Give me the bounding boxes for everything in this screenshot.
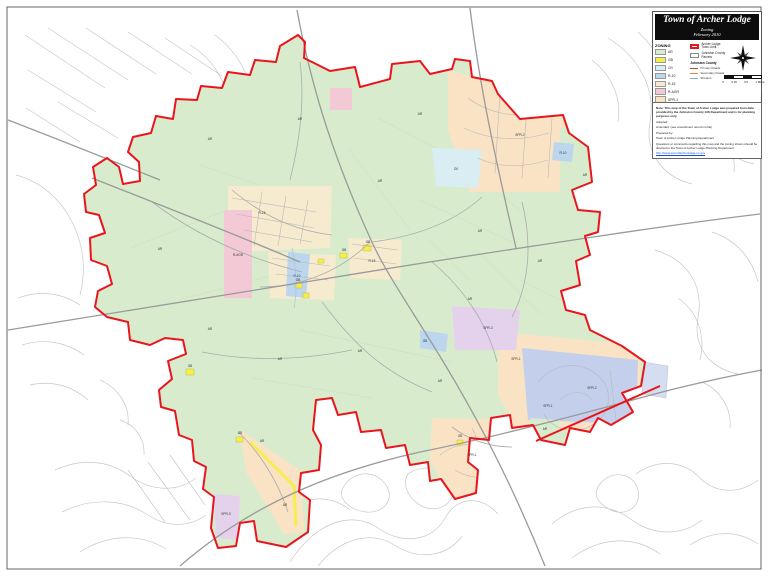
zone-label: GB — [238, 431, 243, 435]
zone-label: GB — [188, 364, 193, 368]
zone-label: SPR-2 — [587, 386, 597, 390]
zone-label: O/I — [454, 167, 458, 171]
zoning-legend-item: R-10 — [655, 73, 690, 80]
boundary-legend-rows: Archer Lodge Town LimitJohnston County P… — [690, 43, 727, 59]
county-legend-item: Primary Roads — [690, 66, 727, 70]
zone-color-swatch — [655, 88, 666, 95]
zone-label: R-15 — [369, 259, 376, 263]
map-sheet: ARARARARARARARARARARARARARARARARR-AGRR-1… — [0, 0, 768, 576]
scale-label: 1 Miles — [756, 80, 765, 84]
boundary-swatch — [690, 44, 699, 49]
line-swatch — [690, 78, 698, 79]
zone-color-swatch — [655, 49, 666, 56]
zone-code-label: GB — [668, 58, 673, 62]
boundary-label: Archer Lodge Town Limit — [701, 43, 727, 50]
zone-code-label: AR — [668, 50, 673, 54]
county-legend-rows: Primary RoadsSecondary RoadsStreams — [690, 66, 727, 80]
scale-bar — [724, 75, 762, 80]
zone-color-swatch — [655, 73, 666, 80]
zone-code-label: R-10 — [668, 74, 675, 78]
county-legend-heading: Johnston County — [690, 61, 727, 65]
zoning-legend-item: O/I — [655, 65, 690, 72]
zoning-legend-item: GB — [655, 57, 690, 64]
notes-block: Note: This map of the Town of Archer Lod… — [652, 102, 762, 159]
county-item-label: Streams — [700, 76, 711, 80]
zone-label: SPR-1 — [467, 453, 477, 457]
county-item-label: Primary Roads — [700, 66, 720, 70]
zone-label: SPR-3 — [483, 326, 493, 330]
zoning-legend-heading: ZONING — [655, 43, 690, 48]
zone-label: AR — [260, 439, 265, 443]
zone-label: AR — [478, 229, 483, 233]
scale-labels: 0 0.25 0.5 1 Miles — [722, 80, 764, 84]
gb-parcel — [303, 293, 309, 298]
note-line: Questions or comments regarding this map… — [656, 142, 758, 150]
zone-color-swatch — [655, 81, 666, 88]
line-swatch — [690, 73, 698, 74]
zone-label: AR — [583, 173, 588, 177]
note-line: Prepared by: — [656, 131, 758, 135]
gb-parcel — [340, 253, 347, 258]
notes-lines: Note: This map of the Town of Archer Lod… — [656, 106, 758, 150]
zone-label: AR — [208, 327, 213, 331]
boundary-label: Johnston County Parcels — [701, 52, 727, 59]
boundary-legend-item: Archer Lodge Town Limit — [690, 43, 727, 50]
zone-code-label: R-15 — [668, 82, 675, 86]
zone-patch — [522, 348, 638, 424]
zone-label: R-15 — [259, 211, 266, 215]
zone-label: GB — [458, 434, 463, 438]
zone-label: GB — [296, 278, 301, 282]
zone-label: SPR-1 — [511, 357, 521, 361]
scale-label: 0 — [722, 80, 724, 84]
zone-label: GB — [342, 248, 347, 252]
zone-label: SPR-2 — [515, 133, 525, 137]
zone-label: AR — [278, 357, 283, 361]
zone-label: GB — [366, 240, 371, 244]
boundary-swatch — [690, 53, 699, 58]
boundary-legend-item: Johnston County Parcels — [690, 52, 727, 59]
zone-label: AR — [358, 349, 363, 353]
zone-label: AR — [418, 112, 423, 116]
zone-label: AR — [298, 117, 303, 121]
map-date: February 2010 — [655, 32, 759, 37]
map-title: Town of Archer Lodge — [655, 16, 759, 26]
gb-parcel — [318, 259, 324, 263]
zone-code-label: O/I — [668, 66, 673, 70]
zone-label: AR — [538, 259, 543, 263]
zone-label: R-AGR — [233, 253, 244, 257]
zone-label: SPR-1 — [543, 404, 553, 408]
zone-label: AR — [158, 247, 163, 251]
zoning-legend-item: AR — [655, 49, 690, 56]
scale-label: 0.5 — [744, 80, 748, 84]
zone-label: AR — [208, 137, 213, 141]
zone-label: AR — [378, 179, 383, 183]
zone-label: R-10 — [560, 151, 567, 155]
zone-label: AR — [438, 379, 443, 383]
info-link[interactable]: http://www.townofarcherlodge-nc.gov — [656, 151, 758, 155]
note-line: Town of Archer Lodge Planning Department — [656, 136, 758, 140]
zoning-legend-item: R-AGR — [655, 88, 690, 95]
zone-label: GB — [423, 339, 428, 343]
note-line: Note: This map of the Town of Archer Lod… — [656, 106, 758, 118]
gb-parcel — [236, 437, 243, 442]
note-line: Adopted: — [656, 120, 758, 124]
county-item-label: Secondary Roads — [700, 71, 724, 75]
title-banner: Town of Archer Lodge Zoning February 201… — [655, 14, 759, 40]
zone-patch — [330, 88, 352, 110]
note-line: Amended: (see amendment record on file) — [656, 125, 758, 129]
zone-color-swatch — [655, 57, 666, 64]
zone-patch — [214, 494, 240, 540]
gb-parcel — [186, 369, 194, 375]
compass-rose-icon — [730, 45, 756, 71]
zone-label: AR — [543, 427, 548, 431]
county-legend-item: Secondary Roads — [690, 71, 727, 75]
zone-code-label: SPR-1 — [668, 98, 678, 102]
scale-label: 0.25 — [731, 80, 736, 84]
zone-label: SPR-3 — [221, 512, 231, 516]
zone-color-swatch — [655, 65, 666, 72]
zone-label: AR — [283, 503, 288, 507]
zone-label: AR — [468, 297, 473, 301]
zone-code-label: R-AGR — [668, 90, 679, 94]
zoning-legend-item: R-15 — [655, 81, 690, 88]
line-swatch — [690, 68, 698, 69]
